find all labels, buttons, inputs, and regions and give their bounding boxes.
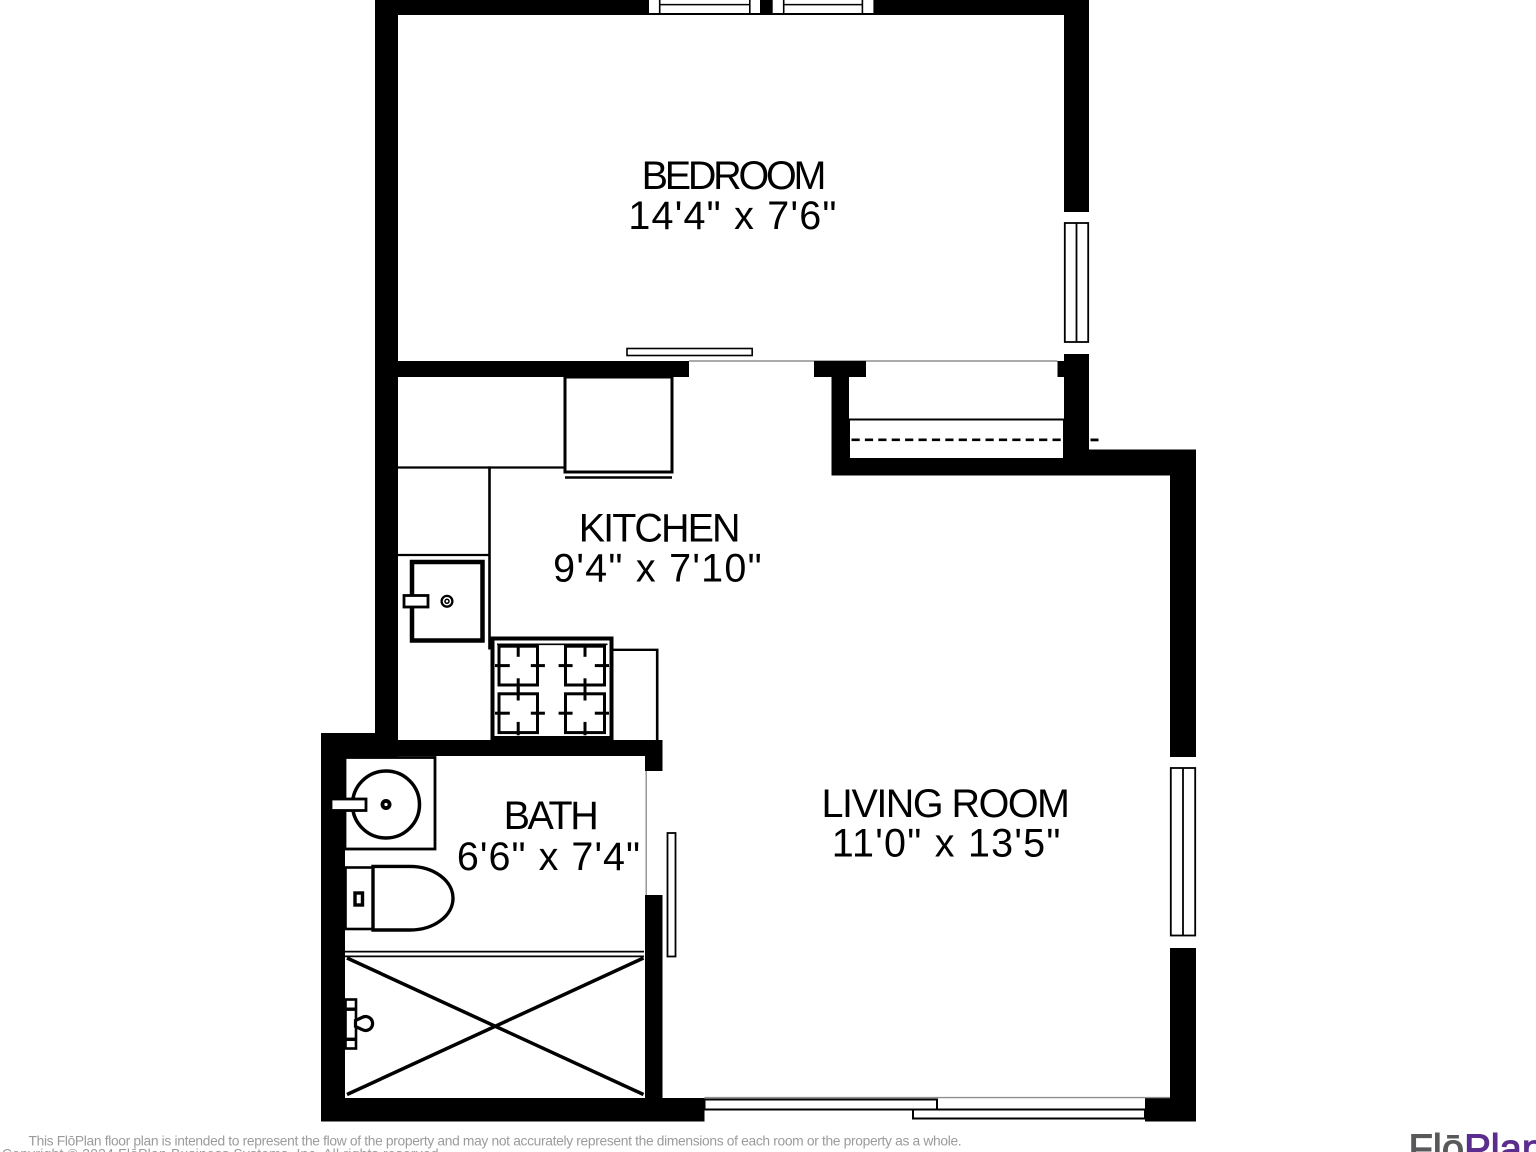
svg-text:11'0" x 13'5": 11'0" x 13'5" bbox=[832, 822, 1062, 866]
svg-text:BATH: BATH bbox=[504, 794, 597, 838]
svg-text:9'4" x 7'10": 9'4" x 7'10" bbox=[553, 546, 763, 590]
svg-text:Copyright © 2024 FlōPlan Busin: Copyright © 2024 FlōPlan Business System… bbox=[2, 1147, 443, 1152]
svg-text:KITCHEN: KITCHEN bbox=[579, 506, 739, 550]
svg-text:6'6" x 7'4": 6'6" x 7'4" bbox=[457, 835, 641, 879]
svg-text:14'4" x 7'6": 14'4" x 7'6" bbox=[628, 194, 837, 238]
svg-text:BEDROOM: BEDROOM bbox=[642, 154, 824, 198]
svg-text:FlōPlan: FlōPlan bbox=[1409, 1127, 1536, 1152]
svg-text:LIVING ROOM: LIVING ROOM bbox=[822, 782, 1069, 826]
